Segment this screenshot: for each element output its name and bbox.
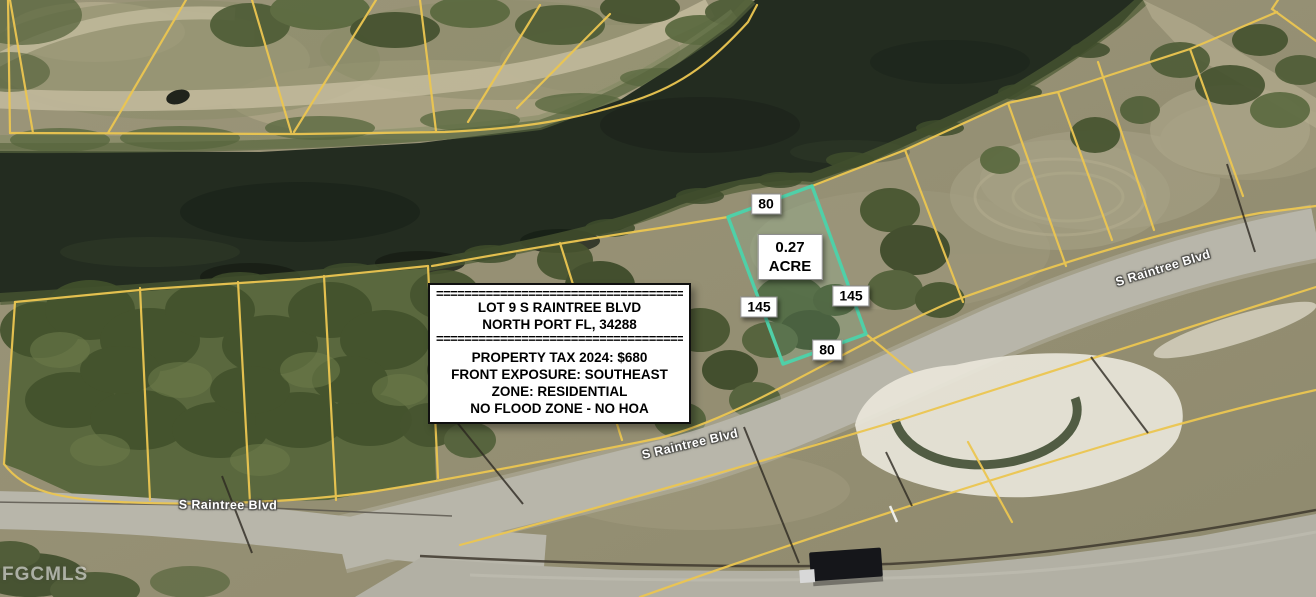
acreage-value: 0.27 — [769, 238, 812, 257]
flood-hoa: NO FLOOD ZONE - NO HOA — [436, 400, 683, 417]
acreage-unit: ACRE — [769, 257, 812, 276]
property-tax: PROPERTY TAX 2024: $680 — [436, 349, 683, 366]
divider-line: ======================================== — [436, 333, 683, 344]
aerial-property-map: ========================================… — [0, 0, 1316, 597]
address-line-1: LOT 9 S RAINTREE BLVD — [436, 299, 683, 316]
lot-dimension-top: 80 — [751, 194, 781, 215]
watermark-fgcmls: FGCMLS — [2, 564, 88, 586]
lot-dimension-left: 145 — [740, 297, 777, 318]
address-line-2: NORTH PORT FL, 34288 — [436, 316, 683, 333]
property-info-box: ========================================… — [428, 283, 691, 424]
lot-dimension-right: 145 — [832, 286, 869, 307]
lot-dimension-bottom: 80 — [812, 340, 842, 361]
zoning: ZONE: RESIDENTIAL — [436, 383, 683, 400]
lot-acreage-label: 0.27 ACRE — [758, 234, 823, 280]
truck — [798, 547, 883, 587]
front-exposure: FRONT EXPOSURE: SOUTHEAST — [436, 366, 683, 383]
divider-line: ======================================== — [436, 288, 683, 299]
street-label-s-raintree-blvd: S Raintree Blvd — [179, 498, 278, 513]
